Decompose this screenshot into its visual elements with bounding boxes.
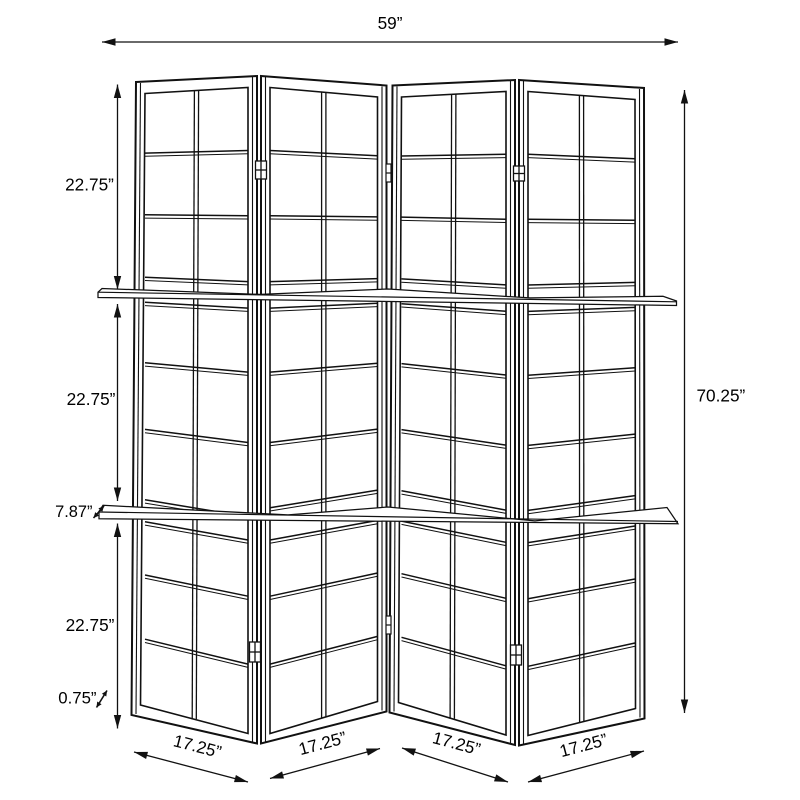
svg-text:59”: 59” [378,13,403,33]
svg-text:0.75”: 0.75” [58,689,96,708]
svg-text:22.75”: 22.75” [65,175,114,195]
svg-text:7.87”: 7.87” [55,503,92,521]
svg-text:22.75”: 22.75” [66,615,115,635]
svg-text:22.75”: 22.75” [67,389,116,409]
svg-text:70.25”: 70.25” [697,386,746,406]
